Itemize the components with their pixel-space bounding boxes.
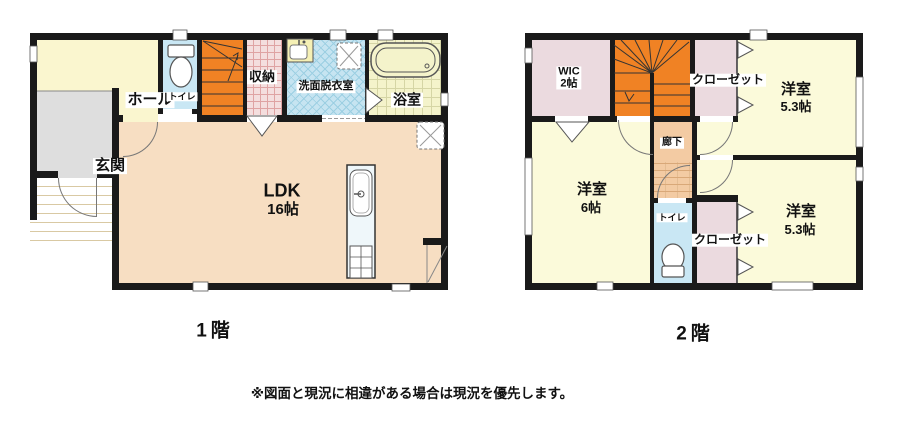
washing-machine-space-icon [337, 43, 361, 69]
floor2-plan: WIC 2帖 クローゼット 洋室 5.3帖 廊下 洋室 6帖 トイレ クローゼッ… [525, 33, 863, 290]
ldk-name-label: LDK [264, 182, 301, 201]
washroom-sliding-door [322, 115, 365, 122]
vanity-sink-icon [287, 39, 313, 62]
disclaimer-text: ※図面と現況に相違がある場合は現況を優先します。 [251, 382, 573, 402]
floorplan-page: { "floor1": { "caption": "1階", "hall": "… [0, 0, 901, 434]
toilet2-door-gap [658, 198, 686, 203]
toilet-1f-label: トイレ [166, 92, 197, 101]
bath-folding-door-icon [366, 88, 382, 113]
corridor-label: 廊下 [660, 138, 684, 149]
bedroom-tr-size-label: 5.3帖 [780, 100, 811, 114]
bedroom-left-size-label: 6帖 [581, 201, 601, 215]
front-door-leaf [96, 178, 97, 217]
floor1-caption: 1階 [196, 316, 234, 343]
bathtub-icon [371, 43, 440, 77]
kitchen-counter-icon [347, 165, 375, 278]
floor1-plan: ホール 玄関 トイレ 収納 洗面脱衣室 浴室 LDK 16帖 [30, 33, 448, 290]
toilet-2f-label: トイレ [656, 213, 687, 222]
toilet-icon-1f [168, 45, 194, 87]
storage-folding-door-icon [247, 116, 277, 136]
stairs-2f-divider [650, 73, 654, 122]
bedroom-br-name-label: 洋室 [786, 204, 816, 220]
stairs-1f-treads [202, 41, 243, 106]
closet-bottom-label: クローゼット [692, 234, 768, 247]
floor2-caption: 2階 [676, 319, 714, 346]
toilet-door-gap [163, 109, 192, 114]
wic-label: WIC 2帖 [556, 66, 581, 89]
bedroom-left-name-label: 洋室 [577, 182, 607, 198]
storage-label: 収納 [247, 70, 277, 84]
toilet-icon-2f [662, 244, 684, 277]
bedroom-br-size-label: 5.3帖 [784, 223, 815, 237]
entrance-label: 玄関 [93, 158, 127, 174]
bedroom-tr-name-label: 洋室 [781, 82, 811, 98]
bath-label: 浴室 [391, 93, 423, 108]
wic-folding-door-icon [556, 122, 589, 142]
wic-size-label: 2帖 [558, 78, 579, 90]
ldk-size-label: 16帖 [267, 202, 299, 218]
wic-name-label: WIC [558, 66, 579, 78]
closet-top-label: クローゼット [690, 74, 766, 87]
refrigerator-space-icon [417, 122, 444, 149]
washroom-label: 洗面脱衣室 [297, 81, 356, 93]
